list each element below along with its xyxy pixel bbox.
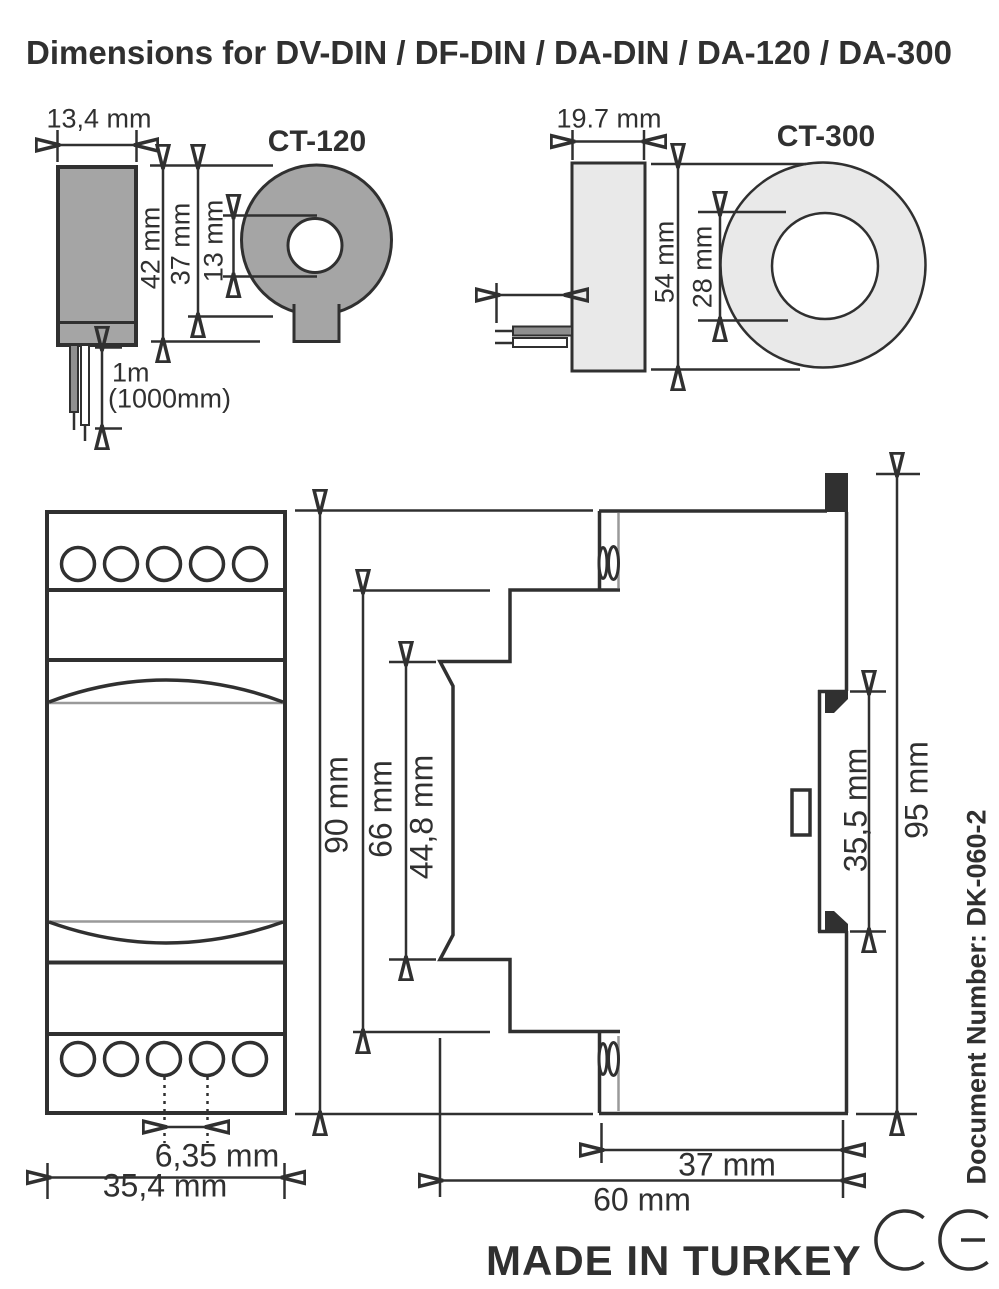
ct120-mount-tab	[294, 304, 339, 342]
module-width-label: 35,4 mm	[103, 1168, 227, 1205]
rail-hook-bottom	[825, 911, 848, 931]
ct300-width-dimension	[573, 130, 645, 160]
ct300-wire-white	[513, 338, 567, 347]
made-in-label: MADE IN TURKEY	[486, 1237, 862, 1285]
ct120-hole	[288, 219, 342, 273]
module-front-height-label: 44,8 mm	[404, 755, 441, 879]
document-number: Document Number: DK-060-2	[962, 809, 993, 1184]
rail-cutout-label: 35,5 mm	[838, 748, 875, 872]
ct120-wire-gray	[70, 345, 78, 412]
depth-label: 60 mm	[593, 1182, 691, 1219]
rail-hook-top	[825, 692, 848, 713]
dimension-drawing-page: Dimensions for DV-DIN / DF-DIN / DA-DIN …	[0, 0, 999, 1289]
ce-mark-icon	[876, 1211, 988, 1269]
module-height-label: 90 mm	[319, 756, 356, 854]
module-front-view	[47, 512, 285, 1199]
depth-dimension	[440, 1038, 841, 1197]
ct300-name-label: CT-300	[777, 120, 875, 154]
page-title: Dimensions for DV-DIN / DF-DIN / DA-DIN …	[26, 34, 952, 72]
module-mid-height-label: 66 mm	[363, 760, 400, 858]
ct300-wire-gray	[513, 327, 572, 336]
ct120-cable-length-alt-label: (1000mm)	[108, 384, 231, 415]
rear-depth-label: 37 mm	[678, 1147, 776, 1184]
ct120-body	[58, 167, 136, 345]
ct120-wire-white	[81, 345, 89, 425]
ct300-cable-dimension	[497, 283, 565, 323]
ct120-hole-label: 13 mm	[199, 200, 230, 283]
ct300-side-view	[495, 163, 645, 371]
module-front-outline	[47, 512, 285, 1113]
ct120-width-dimension	[58, 130, 137, 162]
din-clip-tab	[825, 473, 848, 512]
total-height-label: 95 mm	[899, 741, 936, 839]
ct120-body-height-label: 37 mm	[166, 203, 197, 286]
technical-drawing	[0, 0, 999, 1289]
ct300-hole-label: 28 mm	[688, 226, 719, 309]
ct300-body	[572, 163, 645, 371]
side-terminal-top	[599, 511, 619, 590]
ct120-front-view	[242, 165, 392, 342]
ct300-height-label: 54 mm	[650, 221, 681, 304]
din-clip-slider	[792, 790, 810, 835]
ct300-hole	[772, 213, 878, 319]
ct300-front-view	[721, 163, 926, 368]
ct120-name-label: CT-120	[268, 125, 366, 159]
ct120-height-label: 42 mm	[136, 207, 167, 290]
ct300-width-label: 19.7 mm	[556, 104, 661, 135]
side-terminal-bottom	[599, 1032, 619, 1113]
ct120-width-label: 13,4 mm	[46, 104, 151, 135]
side-front-profile	[440, 590, 620, 1032]
